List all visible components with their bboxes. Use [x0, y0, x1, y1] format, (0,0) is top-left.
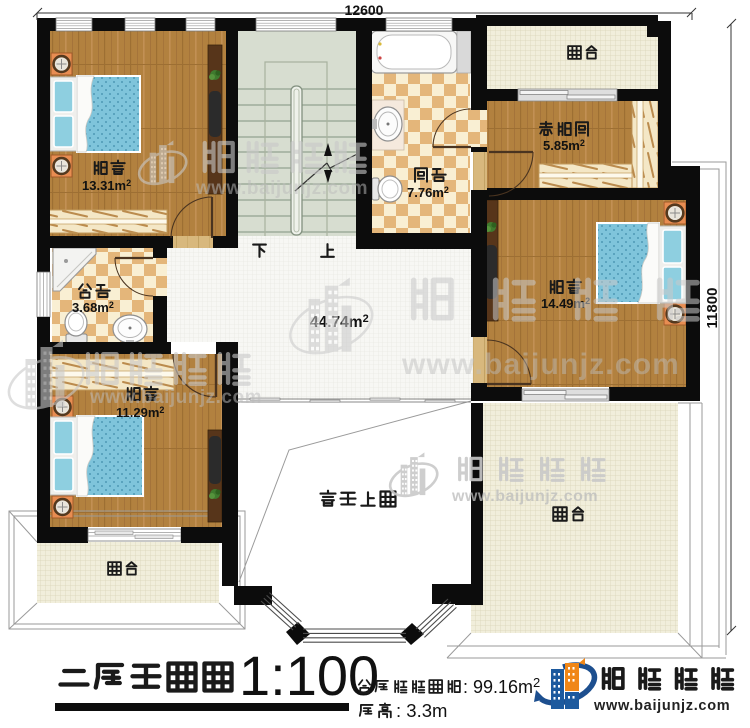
svg-text:3.68m2: 3.68m2 — [72, 300, 114, 315]
svg-text:: 3.3m: : 3.3m — [396, 700, 447, 721]
svg-text:: 99.16m2: : 99.16m2 — [463, 675, 540, 697]
svg-text:www.baijunjz.com: www.baijunjz.com — [401, 348, 680, 381]
svg-text:7.76m2: 7.76m2 — [407, 185, 449, 200]
svg-text:www.baijunjz.com: www.baijunjz.com — [195, 178, 368, 199]
svg-text:www.baijunjz.com: www.baijunjz.com — [451, 488, 598, 505]
svg-text:5.85m2: 5.85m2 — [543, 138, 585, 153]
svg-text:11800: 11800 — [704, 288, 721, 329]
svg-text:1:100: 1:100 — [239, 644, 379, 707]
svg-text:www.baijunjz.com: www.baijunjz.com — [593, 698, 730, 714]
svg-text:13.31m2: 13.31m2 — [82, 178, 131, 193]
svg-text:www.baijunjz.com: www.baijunjz.com — [89, 387, 262, 408]
svg-text:12600: 12600 — [345, 2, 384, 18]
